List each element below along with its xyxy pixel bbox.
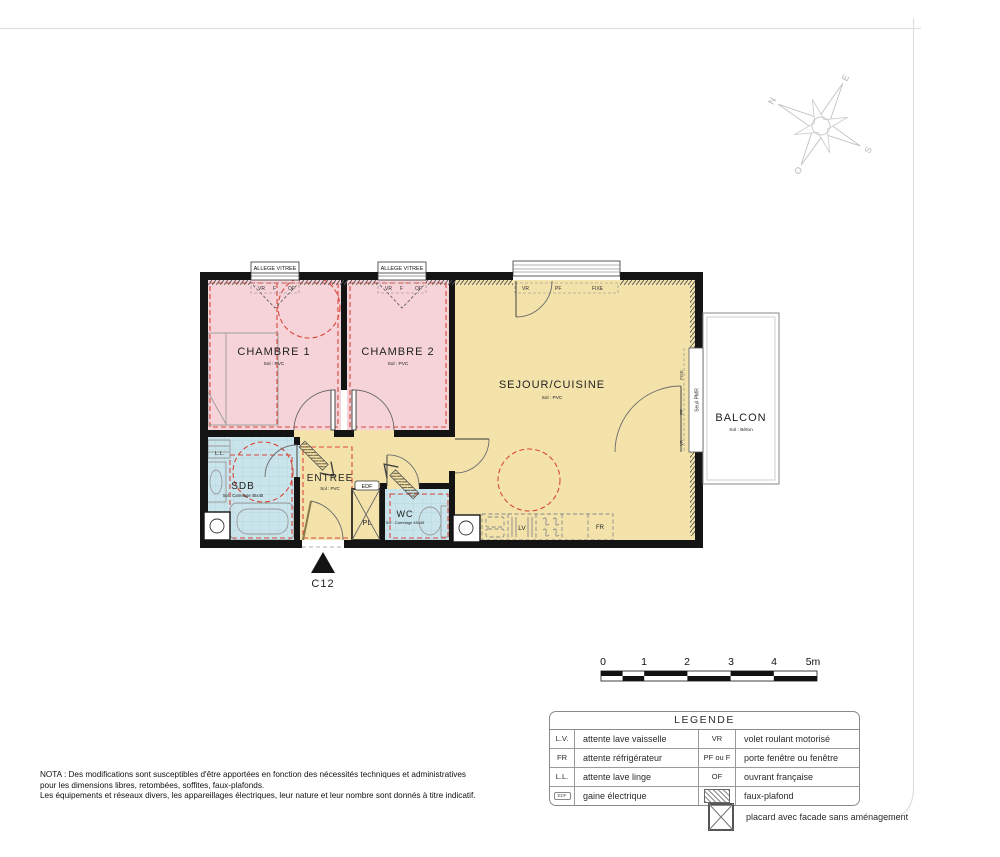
allege-vitree-tags: ALLEGE VITREE ALLEGE VITREE <box>251 262 426 273</box>
label-sejour: SEJOUR/CUISINE <box>499 379 605 391</box>
entrance-marker: C12 <box>311 552 335 590</box>
legend-row: FR attente réfrigérateur PF ou F porte f… <box>550 749 859 768</box>
allege-vitree-label: ALLEGE VITREE <box>254 266 297 272</box>
legend-label: gaine électrique <box>575 787 699 805</box>
compass-north-label: N <box>766 96 778 106</box>
lave-linge-label: L.L. <box>215 451 225 457</box>
nota-line: Les équipements et réseaux divers, les a… <box>40 791 510 802</box>
svg-text:FIXE: FIXE <box>592 286 604 292</box>
label-sdb: SDB <box>231 481 255 492</box>
nota-line: pour les dimensions libres, retombées, s… <box>40 781 510 792</box>
label-chambre1: CHAMBRE 1 <box>237 346 310 358</box>
svg-text:0: 0 <box>600 656 606 668</box>
svg-text:F: F <box>273 286 276 292</box>
svg-text:OF: OF <box>415 286 422 292</box>
placard-note-text: placard avec facade sans aménagement <box>746 812 908 822</box>
compass-rose: N E S O <box>743 48 898 200</box>
nota-block: NOTA : Des modifications sont susceptibl… <box>40 770 510 802</box>
allege-vitree-label: ALLEGE VITREE <box>381 266 424 272</box>
crossed-box-icon <box>708 803 734 831</box>
legend-row: L.L. attente lave linge OF ouvrant franç… <box>550 768 859 787</box>
unit-label: C12 <box>311 578 334 590</box>
svg-text:3: 3 <box>728 656 734 668</box>
svg-text:VR: VR <box>522 286 529 292</box>
drawing-sheet: N E S O <box>0 0 1000 857</box>
compass-south-label: S <box>862 145 874 155</box>
svg-text:F: F <box>400 286 403 292</box>
svg-text:VR: VR <box>258 286 265 292</box>
svg-text:PF: PF <box>555 286 561 292</box>
svg-text:5m: 5m <box>806 656 821 668</box>
nota-line: NOTA : Des modifications sont susceptibl… <box>40 770 510 781</box>
svg-text:EDF: EDF <box>362 484 374 490</box>
bay-window <box>513 261 620 276</box>
legend-symbol: EDF <box>550 787 575 805</box>
legend-title: LEGENDE <box>550 712 859 730</box>
scale-tick-labels: 0 1 2 3 4 5m <box>600 656 820 668</box>
legend-symbol: L.L. <box>550 768 575 786</box>
legend-label: ouvrant française <box>736 768 859 786</box>
label-wc: WC <box>397 509 414 519</box>
legend-label: attente réfrigérateur <box>575 749 699 767</box>
edf-duct-tag: EDF <box>355 481 379 490</box>
legend-symbol: L.V. <box>550 730 575 748</box>
legend-table: LEGENDE L.V. attente lave vaisselle VR v… <box>549 711 860 806</box>
legend-label: porte fenêtre ou fenêtre <box>736 749 859 767</box>
legend-label: volet roulant motorisé <box>736 730 859 748</box>
compass-east-label: E <box>840 73 852 83</box>
floor-entree: Sol : PVC <box>320 486 340 491</box>
hatch-swatch-icon <box>704 789 730 803</box>
floor-wc: Sol : Carrelage 45x45 <box>386 520 425 525</box>
svg-text:VR: VR <box>385 286 392 292</box>
placard-note: placard avec facade sans aménagement <box>708 803 908 831</box>
lave-vaisselle-label: LV <box>518 525 526 532</box>
svg-text:OF: OF <box>288 286 295 292</box>
scale-bar: 0 1 2 3 4 5m <box>600 656 820 681</box>
legend-symbol: PF ou F <box>699 749 736 767</box>
legend-label: attente lave linge <box>575 768 699 786</box>
window-spec-label: PF <box>679 409 684 415</box>
svg-text:2: 2 <box>684 656 690 668</box>
legend-row: L.V. attente lave vaisselle VR volet rou… <box>550 730 859 749</box>
legend-symbol: FR <box>550 749 575 767</box>
label-chambre2: CHAMBRE 2 <box>361 346 434 358</box>
floor-chambre2: Sol : PVC <box>388 361 409 367</box>
legend-label: attente lave vaisselle <box>575 730 699 748</box>
svg-text:4: 4 <box>771 656 777 668</box>
legend-symbol: VR <box>699 730 736 748</box>
window-spec-label: FIXE <box>679 370 684 380</box>
floor-balcon: Sol : Béton <box>729 427 753 433</box>
floor-sdb: Sol : Carrelage 45x45 <box>223 493 264 498</box>
edf-chip-icon: EDF <box>554 792 571 800</box>
label-pl: PL <box>362 518 371 527</box>
seuil-pmr-label: Seuil PMR <box>695 388 701 412</box>
window-spec-label: VR <box>679 440 684 446</box>
room-sejour-cuisine <box>455 280 695 540</box>
svg-text:1: 1 <box>641 656 647 668</box>
floor-chambre1: Sol : PVC <box>264 361 285 367</box>
compass-west-label: O <box>792 165 804 176</box>
floor-sejour: Sol : PVC <box>542 395 563 401</box>
label-balcon: BALCON <box>715 412 766 424</box>
refrigerateur-label: FR <box>596 525 605 531</box>
label-entree: ENTREE <box>307 473 354 484</box>
legend-symbol: OF <box>699 768 736 786</box>
